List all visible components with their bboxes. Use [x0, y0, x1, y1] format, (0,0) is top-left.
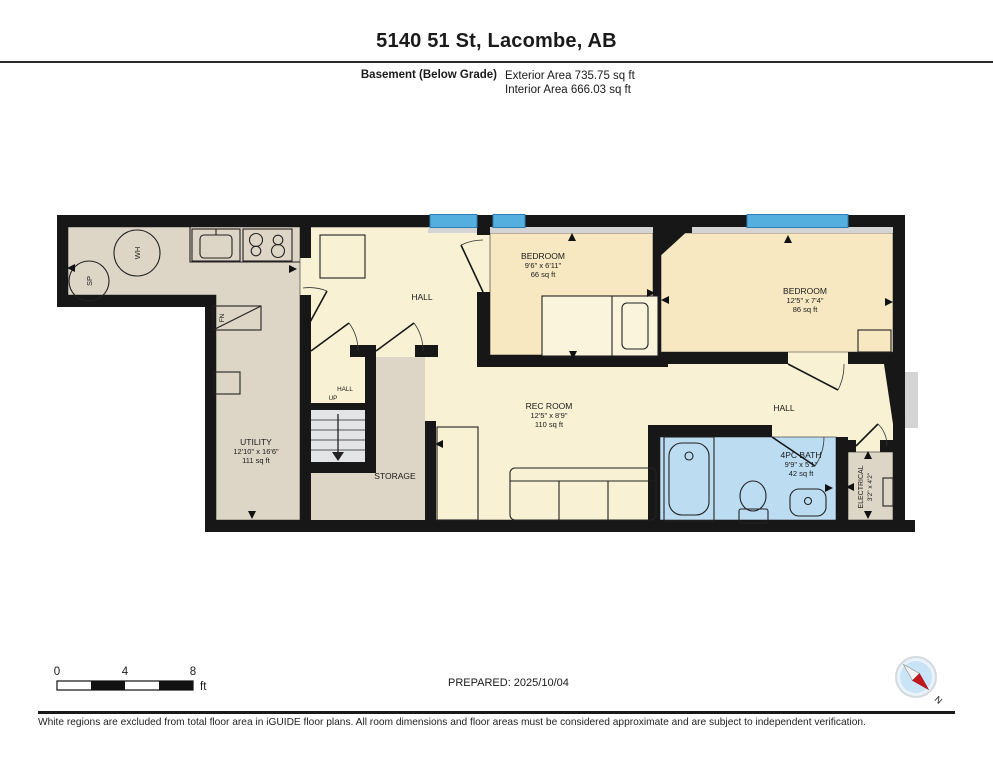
wall-storage-right [425, 421, 436, 520]
compass-icon: N [896, 657, 944, 706]
wall-bath-electrical [836, 437, 848, 520]
svg-text:110 sq ft: 110 sq ft [535, 420, 564, 429]
wall-electrical-top-b [880, 440, 903, 452]
svg-text:9'6" x 6'11": 9'6" x 6'11" [525, 261, 562, 270]
furnace-label: FN [219, 313, 226, 322]
floor-plan-svg: UTILITY 12'10" x 16'6" 111 sq ft BEDROOM… [0, 0, 993, 768]
compass-north-label: N [933, 694, 945, 706]
svg-text:12'5" x 8'9": 12'5" x 8'9" [531, 411, 568, 420]
bedroom2-label: BEDROOM [783, 286, 827, 296]
scale-unit: ft [200, 681, 207, 693]
storage-room-area [376, 357, 425, 520]
wall-bottom [205, 520, 915, 532]
stairs-up-label: UP [329, 395, 338, 402]
svg-text:3'2" x 4'2": 3'2" x 4'2" [867, 472, 874, 501]
wall-below-stairs [300, 462, 376, 473]
sump-pump-label: SP [85, 276, 94, 286]
svg-text:42 sq ft: 42 sq ft [789, 469, 815, 478]
svg-text:0: 0 [54, 666, 60, 678]
hall-stairs-label: HALL [337, 386, 353, 393]
svg-text:66 sq ft: 66 sq ft [531, 270, 557, 279]
svg-text:ELECTRICAL: ELECTRICAL [858, 465, 865, 508]
svg-text:86 sq ft: 86 sq ft [793, 305, 819, 314]
wall-bath-top [648, 425, 772, 437]
svg-text:12'5" x 7'4": 12'5" x 7'4" [787, 296, 824, 305]
rec-room-label: REC ROOM [526, 401, 573, 411]
svg-text:111 sq ft: 111 sq ft [242, 456, 271, 465]
wall-stairs-right [365, 345, 376, 473]
wall-left [57, 215, 68, 307]
window-well-gray [905, 372, 918, 428]
hall-right-label: HALL [773, 403, 795, 413]
window-icon [430, 215, 477, 228]
wall-utility-hall-upper [300, 227, 311, 258]
storage-label: STORAGE [374, 471, 416, 481]
wall-bath-left [648, 425, 660, 520]
window-icon [493, 215, 525, 228]
window-icon [747, 215, 848, 228]
wall-utility-bottom-left [57, 295, 216, 307]
utility-label: UTILITY [240, 437, 272, 447]
floorplan-page: { "header": { "title": "5140 51 St, Laco… [0, 0, 993, 768]
bedroom1-label: BEDROOM [521, 251, 565, 261]
wall-bedroom2-bottom-left [661, 352, 788, 364]
water-heater-label: WH [133, 247, 142, 260]
svg-text:9'9" x 5'1": 9'9" x 5'1" [785, 460, 818, 469]
wall-electrical-top-a [848, 440, 856, 452]
wall-bedroom1-left-top [477, 215, 490, 235]
footer-divider [38, 711, 955, 714]
svg-text:12'10" x 16'6": 12'10" x 16'6" [233, 447, 279, 456]
wall-minihall-a [350, 345, 376, 357]
hall-main-label: HALL [411, 292, 433, 302]
bed-icon [542, 296, 658, 356]
scale-bar: 0 4 8 ft [54, 666, 207, 693]
wall-bedroom2-bottom-right [848, 352, 893, 364]
disclaimer-text: White regions are excluded from total fl… [38, 717, 968, 728]
prepared-date: PREPARED: 2025/10/04 [448, 677, 569, 689]
svg-text:8: 8 [190, 666, 196, 678]
bath-label: 4PC BATH [781, 450, 822, 460]
wall-minihall-b [415, 345, 438, 357]
storage-understair-area [311, 473, 376, 520]
svg-text:4: 4 [122, 666, 129, 678]
utility-room-area [68, 227, 300, 520]
